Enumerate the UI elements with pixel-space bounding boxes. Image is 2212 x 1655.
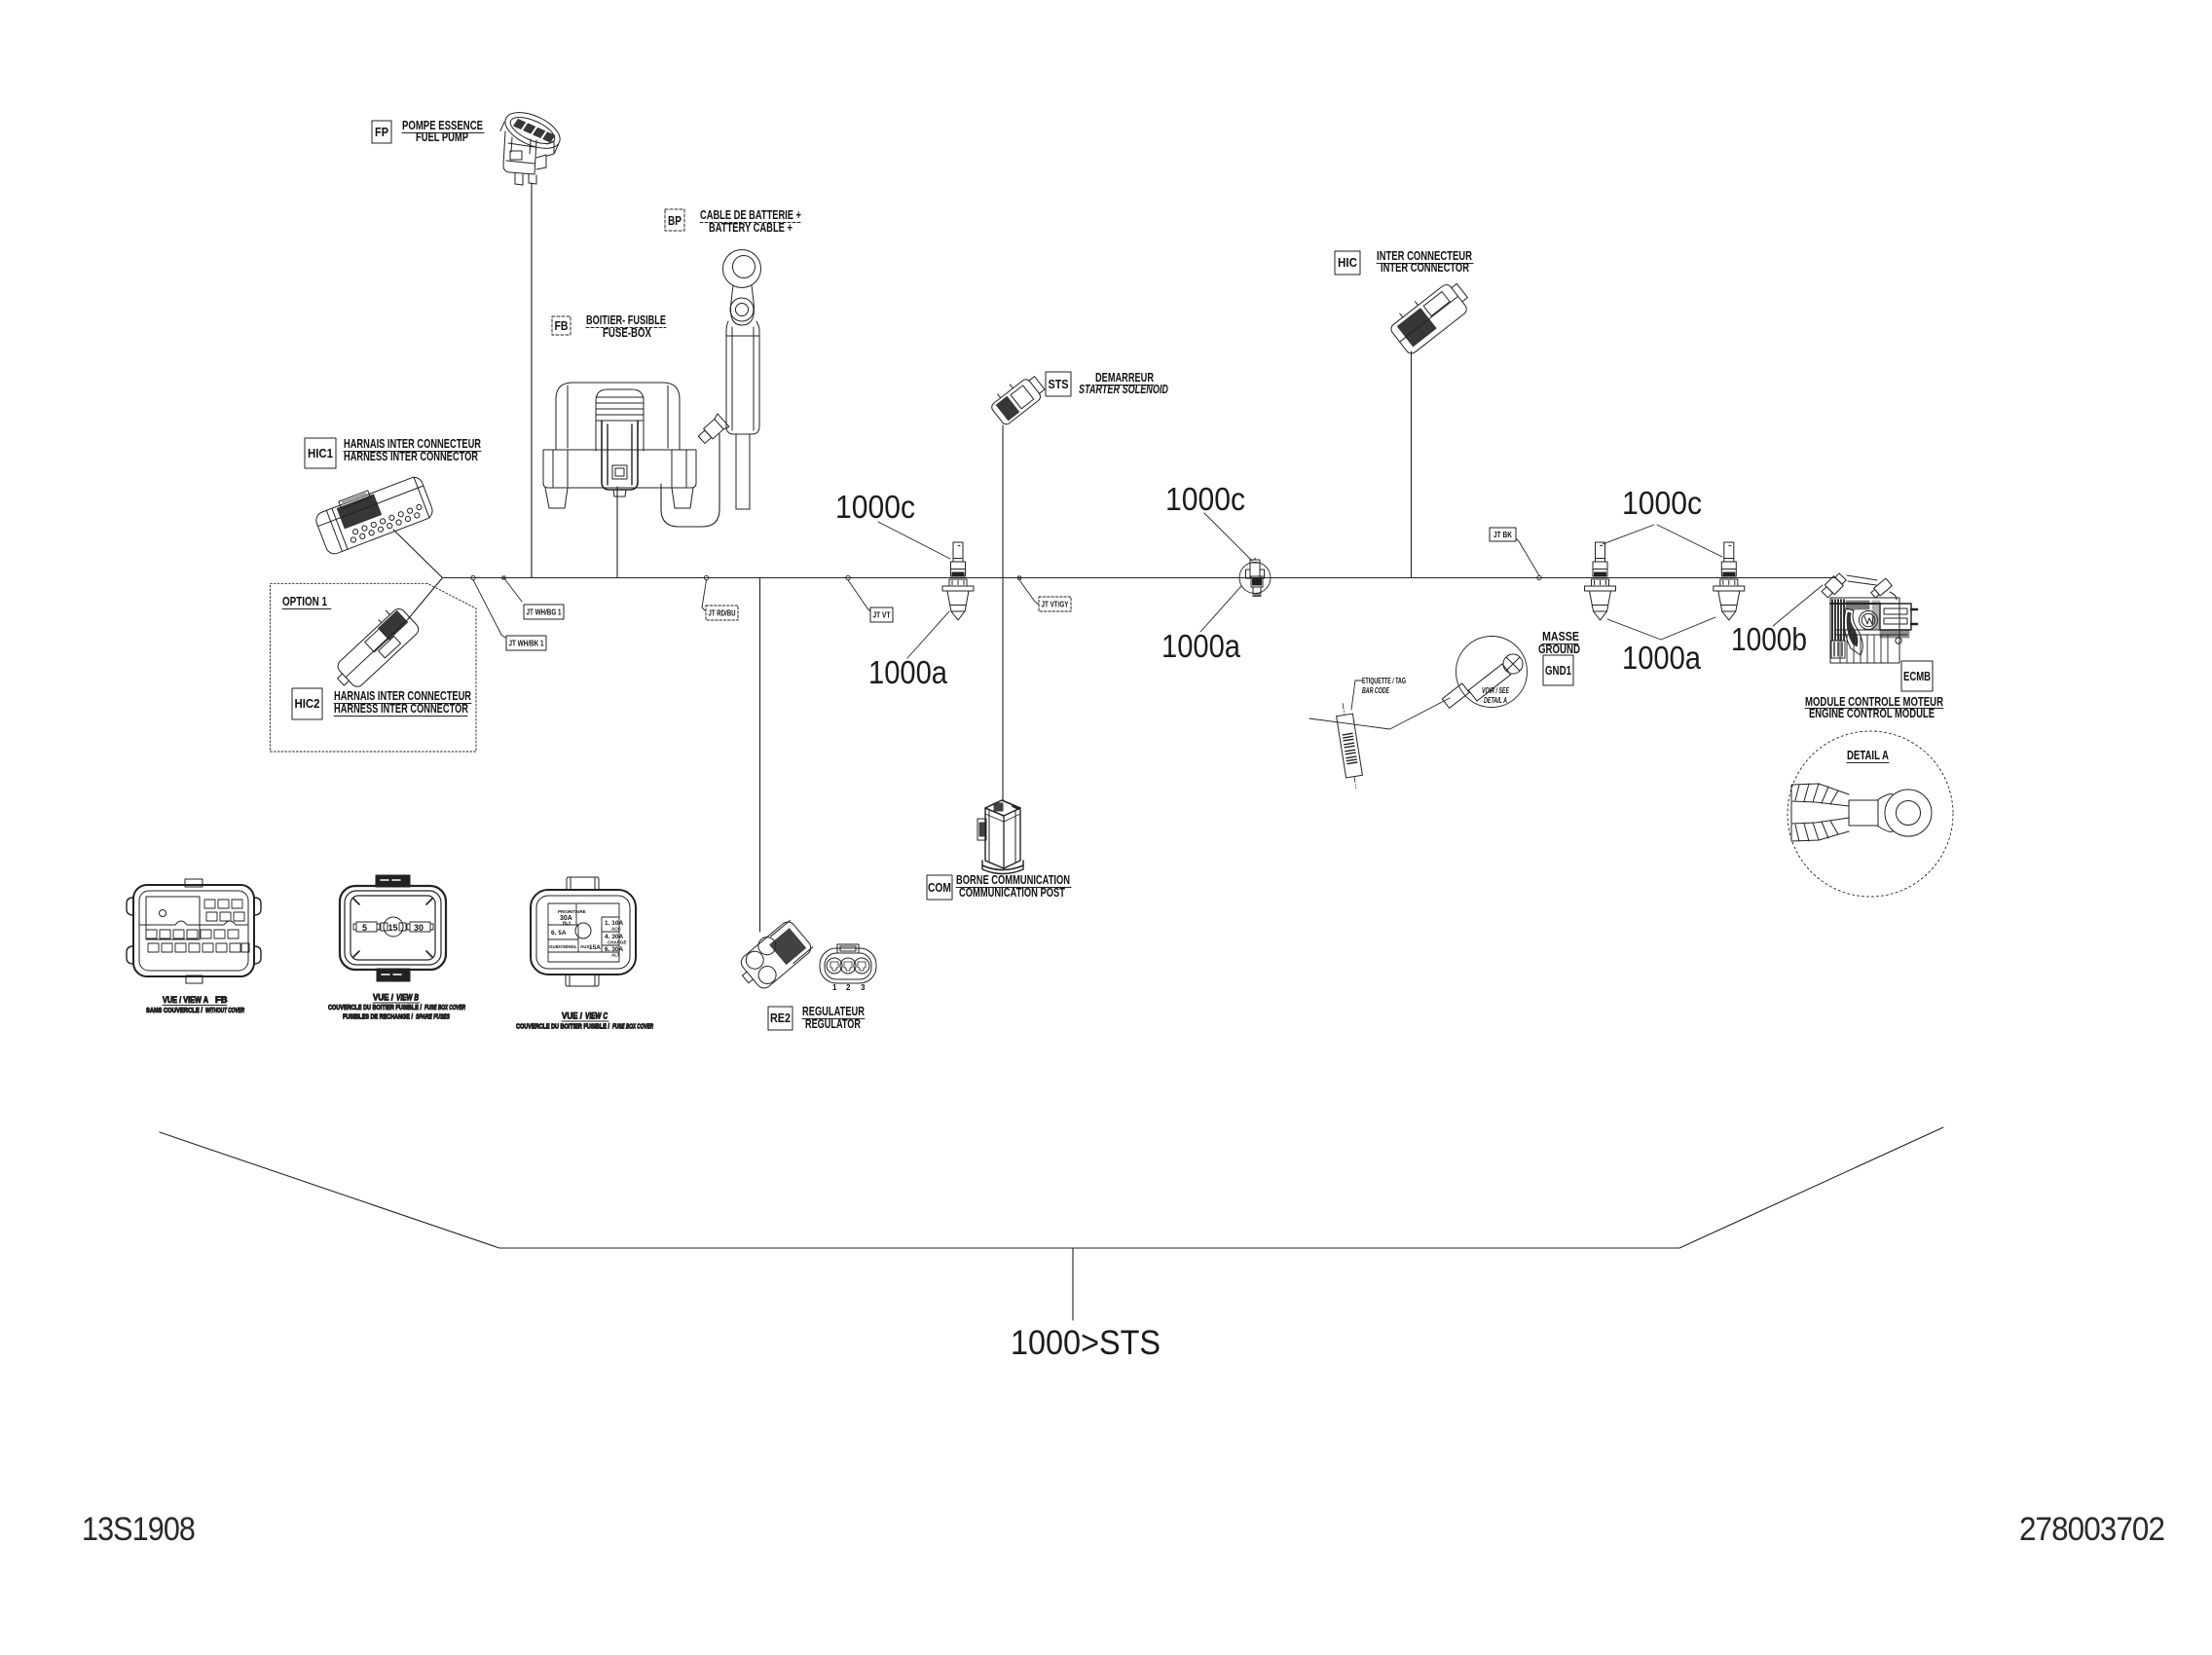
svg-text:ALT: ALT <box>611 953 620 958</box>
svg-text:GUIDON/HDL: GUIDON/HDL <box>549 944 577 949</box>
svg-text:BATTERY CABLE +: BATTERY CABLE + <box>709 221 793 235</box>
svg-text:FB: FB <box>555 319 569 333</box>
svg-text:CHARGE: CHARGE <box>608 940 627 945</box>
svg-text:GND1: GND1 <box>1545 664 1571 678</box>
svg-text:JT RD/BU: JT RD/BU <box>709 608 736 618</box>
svg-text:PRIORITAIRE: PRIORITAIRE <box>558 909 586 914</box>
svg-text:JT BK: JT BK <box>1493 530 1513 539</box>
svg-text:GROUND: GROUND <box>1538 643 1580 656</box>
svg-text:BP: BP <box>668 214 682 228</box>
svg-text:HARNAIS INTER CONNECTEUR: HARNAIS INTER CONNECTEUR <box>344 437 481 451</box>
svg-text:BORNE COMMUNICATION: BORNE COMMUNICATION <box>956 873 1070 887</box>
svg-text:1000c: 1000c <box>1622 485 1702 521</box>
svg-text:VUE / VIEW A: VUE / VIEW A <box>163 995 208 1006</box>
svg-text:1000>STS: 1000>STS <box>1011 1324 1161 1362</box>
svg-text:30: 30 <box>414 923 424 933</box>
svg-text:ETIQUETTE / TAG: ETIQUETTE / TAG <box>1362 677 1406 685</box>
svg-text:HARNESS INTER CONNECTOR: HARNESS INTER CONNECTOR <box>334 702 468 716</box>
svg-text:JT WH/BK 1: JT WH/BK 1 <box>509 639 544 648</box>
svg-text:COUVERCLE DU BOITIER FUSIBLE /: COUVERCLE DU BOITIER FUSIBLE / <box>328 1005 422 1011</box>
svg-text:HARNAIS INTER CONNECTEUR: HARNAIS INTER CONNECTEUR <box>334 689 471 703</box>
svg-text:FUSIBLES DE RECHANGE /: FUSIBLES DE RECHANGE / <box>343 1014 413 1021</box>
svg-text:1000a: 1000a <box>1161 628 1241 664</box>
svg-text:WITHOUT COVER: WITHOUT COVER <box>205 1008 244 1014</box>
svg-text:DETAIL A: DETAIL A <box>1847 749 1889 762</box>
svg-text:STS: STS <box>1049 378 1069 391</box>
svg-text:RLY: RLY <box>563 921 571 926</box>
svg-text:HIC1: HIC1 <box>308 447 333 460</box>
svg-text:1000c: 1000c <box>835 489 915 525</box>
svg-text:1000b: 1000b <box>1731 621 1807 657</box>
svg-text:5: 5 <box>362 923 367 933</box>
svg-text:SANS COUVERCLE /: SANS COUVERCLE / <box>146 1008 203 1014</box>
svg-text:VUE /: VUE / <box>562 1011 582 1022</box>
svg-text:STARTER SOLENOID: STARTER SOLENOID <box>1079 383 1168 396</box>
svg-text:REGULATEUR: REGULATEUR <box>802 1005 865 1018</box>
svg-text:FUSE BOX COVER: FUSE BOX COVER <box>424 1005 465 1011</box>
svg-text:JT WH/BG 1: JT WH/BG 1 <box>527 607 562 617</box>
svg-text:CABLE DE BATTERIE +: CABLE DE BATTERIE + <box>700 208 801 222</box>
svg-text:BAR CODE: BAR CODE <box>1362 686 1389 695</box>
svg-text:VUE /: VUE / <box>373 993 393 1004</box>
svg-text:COUVERCLE DU BOITIER FUSIBLE /: COUVERCLE DU BOITIER FUSIBLE / <box>516 1024 609 1031</box>
svg-text:BOITIER- FUSIBLE: BOITIER- FUSIBLE <box>586 313 666 327</box>
svg-text:278003702: 278003702 <box>2019 1511 2164 1548</box>
svg-text:MASSE: MASSE <box>1542 630 1579 644</box>
svg-text:OPTION 1: OPTION 1 <box>282 595 327 608</box>
svg-text:13S1908: 13S1908 <box>82 1511 195 1548</box>
svg-text:1: 1 <box>832 983 837 992</box>
svg-text:HARNESS INTER CONNECTOR: HARNESS INTER CONNECTOR <box>344 450 478 463</box>
svg-text:6. 5A: 6. 5A <box>551 930 567 937</box>
svg-text:COM: COM <box>928 881 951 895</box>
svg-text:HIC: HIC <box>1338 256 1357 270</box>
svg-text:ACC: ACC <box>611 927 621 932</box>
svg-text:ECMB: ECMB <box>1903 670 1931 683</box>
svg-text:1000c: 1000c <box>1165 481 1245 517</box>
svg-text:FUSE-BOX: FUSE-BOX <box>603 326 652 340</box>
svg-text:FB: FB <box>215 995 228 1006</box>
svg-text:SPARE FUSES: SPARE FUSES <box>416 1014 450 1021</box>
svg-text:VOIR / SEE: VOIR / SEE <box>1482 686 1509 695</box>
svg-text:COMMUNICATION POST: COMMUNICATION POST <box>959 886 1065 900</box>
svg-text:FP: FP <box>375 126 388 139</box>
svg-text:DETAIL A: DETAIL A <box>1484 696 1507 705</box>
svg-text:JT VT/GY: JT VT/GY <box>1042 600 1069 609</box>
svg-text:VIEW B: VIEW B <box>396 993 419 1004</box>
svg-text:1000a: 1000a <box>1622 640 1702 676</box>
svg-text:RE2: RE2 <box>770 1011 791 1025</box>
svg-text:INTER CONNECTOR: INTER CONNECTOR <box>1381 261 1469 275</box>
svg-text:JT VT: JT VT <box>873 610 892 620</box>
svg-text:3: 3 <box>861 983 866 992</box>
svg-text:FUSE BOX COVER: FUSE BOX COVER <box>612 1024 653 1031</box>
svg-text:VIEW C: VIEW C <box>585 1011 608 1022</box>
svg-text:REGULATOR: REGULATOR <box>805 1017 861 1031</box>
svg-text:HIC2: HIC2 <box>295 697 320 711</box>
svg-text:1000a: 1000a <box>868 654 948 690</box>
svg-text:ENGINE CONTROL MODULE: ENGINE CONTROL MODULE <box>1809 707 1935 720</box>
svg-text:15: 15 <box>388 923 398 933</box>
svg-text:2: 2 <box>846 983 851 992</box>
svg-text:FUEL PUMP: FUEL PUMP <box>416 130 468 144</box>
svg-text:15A: 15A <box>589 944 601 951</box>
